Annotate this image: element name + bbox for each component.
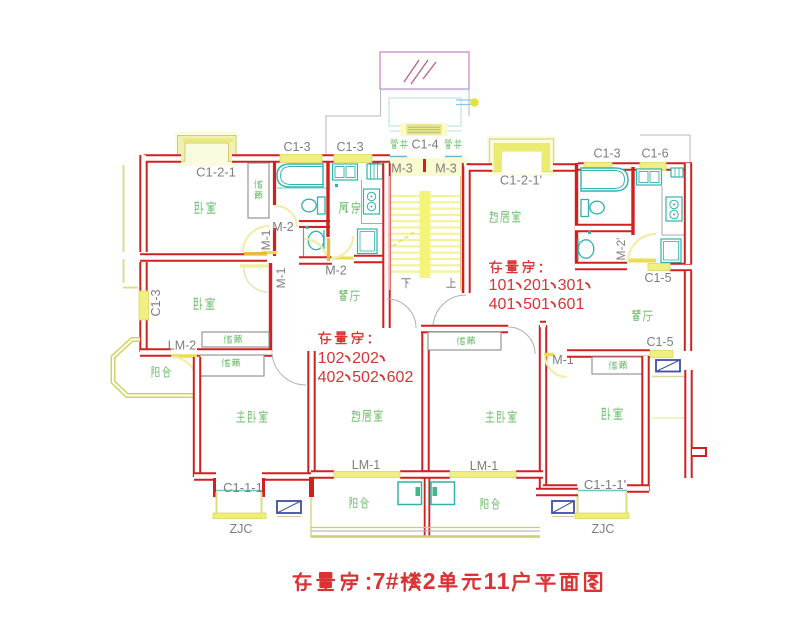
svg-text:C1-5: C1-5 (646, 335, 673, 349)
svg-text:#: # (386, 568, 399, 594)
svg-text:ZJC: ZJC (592, 522, 615, 536)
svg-text:ZJC: ZJC (230, 522, 253, 536)
svg-text:C1-1-1: C1-1-1 (223, 480, 263, 495)
svg-text:LM-2: LM-2 (168, 338, 197, 352)
svg-text:M-3: M-3 (435, 161, 457, 175)
svg-text:C1-5: C1-5 (644, 271, 671, 285)
svg-text:301: 301 (558, 277, 585, 294)
svg-text:102: 102 (318, 350, 345, 367)
svg-text:M-3: M-3 (391, 161, 413, 175)
svg-text:7: 7 (373, 568, 386, 594)
svg-text:502: 502 (352, 369, 379, 386)
svg-text:501: 501 (523, 296, 550, 313)
svg-text:201: 201 (523, 277, 550, 294)
svg-text:C1-3: C1-3 (149, 289, 163, 316)
svg-text:C1-3: C1-3 (593, 146, 620, 160)
svg-text:LM-1: LM-1 (352, 458, 381, 472)
svg-text:C1-1-1': C1-1-1' (584, 477, 626, 492)
svg-text:LM-1: LM-1 (470, 459, 499, 473)
svg-text:M-1: M-1 (259, 229, 273, 250)
svg-text:1: 1 (484, 568, 497, 594)
svg-text:M-2: M-2 (325, 263, 347, 277)
svg-text:C1-3: C1-3 (336, 140, 363, 154)
svg-text:C1-3: C1-3 (283, 140, 310, 154)
svg-text:C1-2-1': C1-2-1' (500, 172, 542, 187)
svg-text:M-1: M-1 (274, 267, 288, 288)
svg-text:401: 401 (489, 296, 516, 313)
svg-text:M-2': M-2' (614, 238, 628, 261)
svg-text:1: 1 (497, 568, 510, 594)
svg-text:402: 402 (318, 369, 345, 386)
svg-text:601: 601 (558, 296, 585, 313)
svg-text:602: 602 (387, 369, 414, 386)
svg-text:101: 101 (489, 277, 516, 294)
svg-text:C1-6: C1-6 (641, 146, 668, 160)
svg-text:C1-4: C1-4 (411, 137, 438, 151)
svg-text:M-2: M-2 (272, 220, 294, 234)
svg-text:2: 2 (423, 568, 436, 594)
svg-text:C1-2-1: C1-2-1 (196, 164, 236, 179)
svg-text:202: 202 (352, 350, 379, 367)
